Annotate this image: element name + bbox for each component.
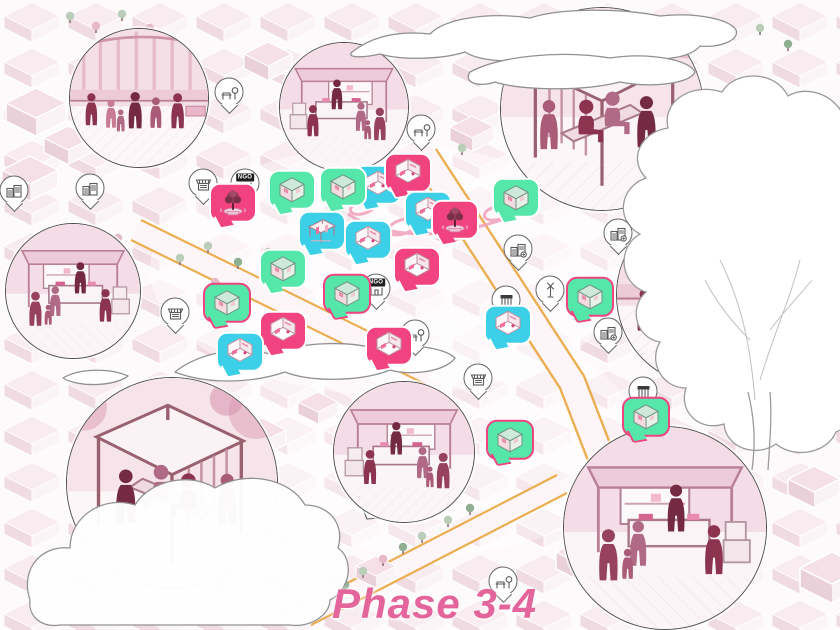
green-marker-cube: [268, 170, 316, 210]
green-marker-cube: [319, 167, 367, 207]
pin-building-lock: [594, 318, 623, 347]
pin-buildings: [76, 174, 105, 203]
cyan-marker-room: [484, 305, 532, 345]
green-marker-cube: [622, 397, 670, 437]
ngo-label: NGO: [236, 174, 255, 182]
pin-food-stall: [161, 298, 190, 327]
cyan-marker-room: [344, 220, 392, 260]
green-marker-cube: [323, 274, 371, 314]
cyan-marker-room: [216, 332, 264, 372]
green-marker-cube: [203, 283, 251, 323]
pin-food-stall: [464, 364, 493, 393]
sketch-overlay: [0, 0, 840, 630]
pin-food-stall: [189, 169, 218, 198]
large-tree-icon: [623, 76, 840, 470]
vignette-street-cube-pavilion: [66, 377, 278, 589]
road: [131, 149, 648, 625]
pin-bench-tree: [215, 78, 244, 107]
pin-shop-front: [492, 286, 521, 315]
pin-ngo-sign: NGO: [362, 274, 391, 303]
pin-layer: NGONGO: [0, 0, 840, 630]
cyan-marker-pavilion: [298, 211, 346, 251]
pink-marker-room: [393, 247, 441, 287]
marker-layer: [0, 0, 840, 630]
cyan-marker-room: [354, 165, 402, 205]
vignette-layer: [0, 0, 840, 630]
pin-shop-front: [629, 377, 658, 406]
masterplan-illustration: NGONGO Phase 3-4: [0, 0, 840, 630]
pink-marker-room: [259, 311, 307, 351]
vignette-market-stall: [5, 223, 141, 359]
city-map-background: [0, 0, 840, 630]
pin-buildings: [0, 176, 29, 205]
vignette-community-workshop: [616, 204, 798, 386]
pink-marker-tree: [431, 200, 479, 240]
pin-windmill: [536, 276, 565, 305]
vignette-street-market: [279, 42, 409, 172]
pin-building-lock: [604, 219, 633, 248]
vignette-plaza-gathering: [69, 28, 209, 168]
cloud-icon: [27, 10, 736, 625]
vignette-kiosk-service: [563, 426, 767, 630]
green-marker-cube: [566, 277, 614, 317]
pink-path-loops: [348, 197, 512, 244]
pin-bench-tree: [407, 115, 436, 144]
pink-marker-tree: [209, 183, 257, 223]
pin-ngo-sign: NGO: [231, 169, 260, 198]
pin-building-lock: [504, 235, 533, 264]
phase-label: Phase 3-4: [332, 580, 537, 628]
green-marker-cube: [492, 178, 540, 218]
edge-buildings: [2, 42, 840, 609]
vignette-tail: [357, 494, 393, 519]
pink-marker-room: [365, 326, 413, 366]
green-marker-cube: [259, 249, 307, 289]
pin-bench-tree: [401, 320, 430, 349]
green-marker-cube: [486, 420, 534, 460]
pink-marker-room: [384, 153, 432, 193]
ngo-label: NGO: [367, 279, 386, 287]
vignette-logistics-stall: [333, 381, 475, 523]
vignette-bench-pavilion: [500, 7, 704, 211]
cyan-marker-room: [404, 191, 452, 231]
tree-icon: [66, 10, 792, 619]
